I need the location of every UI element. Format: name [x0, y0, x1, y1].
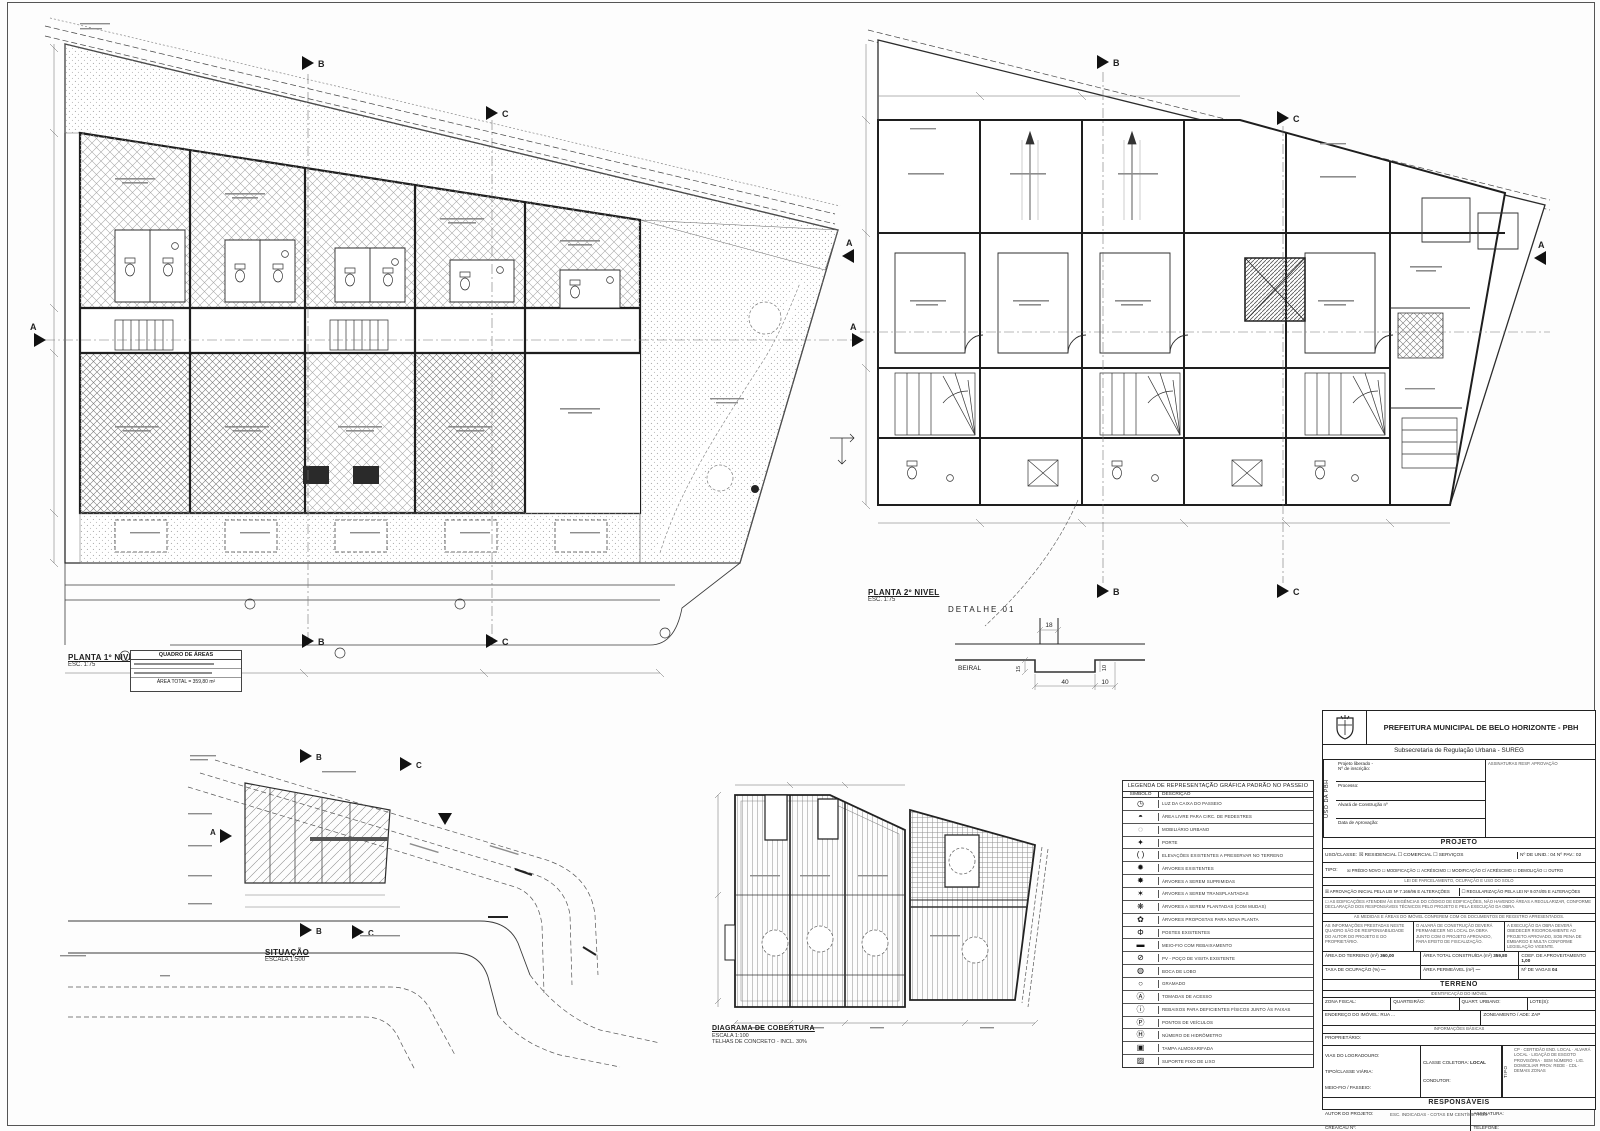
- legend-row: ✸ÁRVORES A SEREM SUPRIMIDAS: [1123, 875, 1313, 888]
- legend-desc: ÁRVORES A SEREM SUPRIMIDAS: [1159, 879, 1313, 884]
- roof-note: TELHAS DE CONCRETO - INCL. 30%: [712, 1039, 815, 1045]
- plan1-areas-table: QUADRO DE ÁREAS ÁREA TOTAL = 359,80 m²: [130, 650, 242, 692]
- legend-row: ⓅPONTOS DE VEÍCULOS: [1123, 1017, 1313, 1030]
- taxa-ocupacao-value: —: [1381, 967, 1386, 972]
- svg-text:C: C: [1293, 587, 1300, 597]
- site-title: SITUAÇÃO: [265, 948, 309, 957]
- legend-desc: POSTES EXISTENTES: [1159, 930, 1313, 935]
- meio-fio-passeio: MEIO-FIO / PASSEIO:: [1325, 1085, 1418, 1090]
- legend-desc: TOMADAS DE ACESSO: [1159, 994, 1313, 999]
- site-street-main: [68, 921, 530, 1015]
- svg-text:C: C: [416, 761, 422, 770]
- roof-right-block: [910, 810, 1048, 1007]
- legend-desc: ÁRVORES EXISTENTES: [1159, 866, 1313, 871]
- lotes: LOTE(S):: [1528, 998, 1595, 1010]
- svg-text:B: B: [1113, 587, 1120, 597]
- areas-table-total: ÁREA TOTAL = 359,80 m²: [131, 678, 241, 686]
- plan1-title: PLANTA 1º NIVEL: [68, 653, 139, 662]
- proprietario: PROPRIETÁRIO:: [1323, 1034, 1595, 1045]
- svg-text:15: 15: [1016, 666, 1022, 672]
- legend-symbol: ✸: [1123, 877, 1159, 885]
- legend-desc: SUPORTE FIXO DE LIXO: [1159, 1059, 1313, 1064]
- legend-row: ⓘREBAIXOS PARA DEFICIENTES FÍSICOS JUNTO…: [1123, 1004, 1313, 1017]
- svg-text:C: C: [368, 929, 374, 938]
- legend-row: ✦PORTE: [1123, 837, 1313, 850]
- vagas-label: Nº DE VAGAS: [1521, 967, 1550, 972]
- roof-title: DIAGRAMA DE COBERTURA: [712, 1025, 815, 1033]
- legend-row: ❋ÁRVORES A SEREM PLANTADAS (COM MUDAS): [1123, 901, 1313, 914]
- legend-desc: PONTOS DE VEÍCULOS: [1159, 1020, 1313, 1025]
- plan2-caption: PLANTA 2º NIVEL ESC. 1:75: [868, 588, 939, 604]
- tipo-label: TIPO:: [1323, 867, 1345, 874]
- endereco: ENDEREÇO DO IMÓVEL: RUA ...: [1323, 1011, 1481, 1025]
- legend-row: ⊘PV - POÇO DE VISITA EXISTENTE: [1123, 952, 1313, 965]
- legend-row: ✹ÁRVORES EXISTENTES: [1123, 862, 1313, 875]
- terreno-header: TERRENO: [1323, 980, 1595, 990]
- lei-line: LEI DE PARCELAMENTO, OCUPAÇÃO E USO DO S…: [1323, 878, 1595, 885]
- coef-value: 1,00: [1521, 958, 1530, 963]
- field-assinaturas: ASSINATURAS RESP. APROVAÇÃO: [1486, 760, 1595, 837]
- site-scale: ESCALA 1:500: [265, 957, 309, 964]
- roof-left-block: [725, 795, 905, 1007]
- legend-symbol: ◷: [1123, 800, 1159, 808]
- legend-desc: REBAIXOS PARA DEFICIENTES FÍSICOS JUNTO …: [1159, 1007, 1313, 1012]
- roof-plan-drawing: [690, 775, 1050, 1045]
- coef-label: COEF. DE APROVEITAMENTO: [1521, 953, 1586, 958]
- legend-row: ΦPOSTES EXISTENTES: [1123, 927, 1313, 940]
- fine-print-3b: O ALVARÁ DE CONSTRUÇÃO DEVERÁ PERMANECER…: [1414, 922, 1505, 951]
- field-alvara: Alvará de Construção nº: [1336, 801, 1485, 820]
- svg-text:C: C: [502, 637, 509, 647]
- legend-row: ▣TAMPA ALMOXARIFADA: [1123, 1042, 1313, 1055]
- legend-table: LEGENDA DE REPRESENTAÇÃO GRÁFICA PADRÃO …: [1122, 780, 1314, 1068]
- responsaveis-header: RESPONSÁVEIS: [1323, 1098, 1595, 1109]
- svg-text:A: A: [1538, 240, 1545, 250]
- legend-row: ⒽNÚMERO DE HIDRÔMETRO: [1123, 1029, 1313, 1042]
- legend-desc: LUZ DA CAIXA DO PASSEIO: [1159, 801, 1313, 806]
- info-basicas: INFORMAÇÕES BÁSICAS: [1323, 1026, 1595, 1033]
- plan2-building: [878, 120, 1518, 505]
- tipo-vert-label: TIPO: [1502, 1046, 1512, 1097]
- classe-coletora-value: LOCAL: [1470, 1060, 1486, 1065]
- aprovacao-opt2: ☐ REGULARIZAÇÃO PELA LEI Nº 9.074/05 E A…: [1459, 888, 1596, 896]
- legend-desc: ELEVAÇÕES EXISTENTES A PRESERVAR NO TERR…: [1159, 853, 1313, 858]
- legend-symbol: Ⓟ: [1123, 1019, 1159, 1027]
- svg-text:B: B: [316, 753, 322, 762]
- legend-desc: BOCA DE LOBO: [1159, 969, 1313, 974]
- legend-col-desc: DESCRIÇÃO: [1159, 792, 1313, 797]
- legend-symbol: ✿: [1123, 916, 1159, 924]
- legend-desc: ÁRVORES A SEREM TRANSPLANTADAS: [1159, 891, 1313, 896]
- plan2-title: PLANTA 2º NIVEL: [868, 588, 939, 597]
- legend-symbol: ▣: [1123, 1044, 1159, 1052]
- fine-print-1: ☐ AS EDIFICAÇÕES ATENDEM ÀS EXIGÊNCIAS D…: [1323, 898, 1595, 913]
- svg-text:18: 18: [1045, 622, 1053, 629]
- drawing-sheet: B C B C A A: [0, 0, 1600, 1131]
- site-street-lower: [68, 975, 660, 1070]
- svg-text:B: B: [316, 927, 322, 936]
- legend-symbol: ◌: [1123, 826, 1159, 834]
- fine-print-3c: A EXECUÇÃO DA OBRA DEVERÁ OBEDECER RIGOR…: [1505, 922, 1595, 951]
- legend-row: ◍BOCA DE LOBO: [1123, 965, 1313, 978]
- svg-text:B: B: [318, 59, 325, 69]
- svg-text:10: 10: [1101, 679, 1109, 686]
- svg-text:A: A: [210, 828, 216, 837]
- site-plan-drawing: B C A B C: [60, 725, 680, 1071]
- plan1-caption: PLANTA 1º NIVEL ESC. 1:75: [68, 653, 139, 669]
- legend-row: ○GRAMADO: [1123, 978, 1313, 991]
- legend-rows: ◷LUZ DA CAIXA DO PASSEIO◓ÁREA LIVRE PARA…: [1123, 798, 1313, 1067]
- quarteirao: QUARTEIRÃO:: [1391, 998, 1459, 1010]
- legend-symbol: ◓: [1123, 813, 1159, 821]
- legend-symbol: ▨: [1123, 1057, 1159, 1065]
- zoneamento: ZONEAMENTO / ADE: ZAP: [1481, 1011, 1595, 1025]
- svg-text:40: 40: [1061, 679, 1069, 686]
- legend-desc: GRAMADO: [1159, 981, 1313, 986]
- autor-telefone: TELEFONE:: [1473, 1125, 1593, 1130]
- uso-pbh-strip: USO DA PBH: [1323, 760, 1336, 837]
- uso-right: Nº DE UNID.: 04 Nº PAV.: 02: [1517, 852, 1595, 859]
- legend-title: LEGENDA DE REPRESENTAÇÃO GRÁFICA PADRÃO …: [1123, 781, 1313, 792]
- legend-symbol: ○: [1123, 980, 1159, 988]
- legend-desc: PV - POÇO DE VISITA EXISTENTE: [1159, 956, 1313, 961]
- field-inscricao: Nº de inscrição:: [1338, 766, 1483, 771]
- areas-table-title: QUADRO DE ÁREAS: [131, 651, 241, 660]
- titleblock-footer: ESC. INDICADAS - COTAS EM CENTÍMETROS: [1390, 1112, 1487, 1117]
- svg-text:B: B: [1113, 58, 1120, 68]
- uso-options: ☒ RESIDENCIAL ☐ COMERCIAL ☐ SERVIÇOS: [1357, 852, 1517, 859]
- site-lot: [245, 783, 400, 907]
- field-processo: Processo:: [1336, 782, 1485, 801]
- tipo-checklist: CP · CERTIDÃO END. LOCAL · ALVARÁ LOCAL …: [1512, 1046, 1595, 1097]
- legend-desc: NÚMERO DE HIDRÔMETRO: [1159, 1033, 1313, 1038]
- area-permeavel-label: ÁREA PERMEÁVEL (m²): [1423, 967, 1474, 972]
- plan1-side-yard: [619, 220, 838, 563]
- legend-symbol: ✹: [1123, 864, 1159, 872]
- plan2-scale: ESC. 1:75: [868, 597, 939, 604]
- legend-symbol: ✶: [1123, 890, 1159, 898]
- vagas-value: 04: [1552, 967, 1557, 972]
- zona-fiscal: ZONA FISCAL:: [1323, 998, 1391, 1010]
- site-caption: SITUAÇÃO ESCALA 1:500: [265, 948, 309, 964]
- plan2-second-floor-drawing: B C B C A A: [850, 8, 1560, 656]
- legend-symbol: Φ: [1123, 929, 1159, 937]
- svg-text:C: C: [502, 109, 509, 119]
- legend-symbol: ▬: [1123, 941, 1159, 949]
- legend-row: ◓ÁREA LIVRE PARA CIRC. DE PEDESTRES: [1123, 811, 1313, 824]
- legend-row: ( )ELEVAÇÕES EXISTENTES A PRESERVAR NO T…: [1123, 849, 1313, 862]
- plan1-street: [65, 563, 740, 645]
- detail-beiral-label: BEIRAL: [958, 665, 982, 672]
- svg-text:C: C: [1293, 114, 1300, 124]
- titleblock-subheader: Subsecretaria de Regulação Urbana - SURE…: [1323, 745, 1595, 759]
- projeto-header: PROJETO: [1323, 838, 1595, 848]
- legend-desc: TAMPA ALMOXARIFADA: [1159, 1046, 1313, 1051]
- legend-desc: MOBILIÁRIO URBANO: [1159, 827, 1313, 832]
- area-permeavel-value: —: [1476, 967, 1481, 972]
- legend-desc: ÁRVORES PROPOSTAS PARA NOVA PLANTA: [1159, 917, 1313, 922]
- site-curb-marks: [488, 869, 596, 955]
- pbh-logo: [1323, 711, 1367, 744]
- legend-row: ✿ÁRVORES PROPOSTAS PARA NOVA PLANTA: [1123, 914, 1313, 927]
- vias-logradouro: VIAS DO LOGRADOURO:: [1325, 1053, 1418, 1058]
- svg-text:B: B: [318, 637, 325, 647]
- legend-symbol: ⊘: [1123, 954, 1159, 962]
- plan1-dark-block: [303, 466, 329, 484]
- detail-01-drawing: DETALHE 01 18 40 10 15 10 BEIRAL: [940, 598, 1170, 703]
- legend-desc: ÁREA LIVRE PARA CIRC. DE PEDESTRES: [1159, 814, 1313, 819]
- title-block: PREFEITURA MUNICIPAL DE BELO HORIZONTE -…: [1322, 710, 1596, 1110]
- legend-row: ◷LUZ DA CAIXA DO PASSEIO: [1123, 798, 1313, 811]
- detail-title: DETALHE 01: [948, 605, 1015, 614]
- area-construida-value: 359,80: [1493, 953, 1507, 958]
- legend-symbol: Ⓗ: [1123, 1031, 1159, 1039]
- legend-symbol: ⓘ: [1123, 1006, 1159, 1014]
- plan1-scale: ESC. 1:75: [68, 662, 139, 669]
- taxa-ocupacao-label: TAXA DE OCUPAÇÃO (%): [1325, 967, 1380, 972]
- svg-text:10: 10: [1102, 665, 1108, 671]
- legend-row: ✶ÁRVORES A SEREM TRANSPLANTADAS: [1123, 888, 1313, 901]
- terreno-sub: IDENTIFICAÇÃO DO IMÓVEL: [1323, 991, 1595, 997]
- fine-print-2: AS MEDIDAS E ÁREAS DO IMÓVEL CONFEREM CO…: [1323, 914, 1595, 921]
- plan1-dark-block: [353, 466, 379, 484]
- classe-coletora: CLASSE COLETORA:: [1423, 1060, 1469, 1065]
- condutor: CONDUTOR:: [1423, 1078, 1499, 1083]
- fine-print-3a: AS INFORMAÇÕES PRESTADAS NESTE QUADRO SÃ…: [1323, 922, 1414, 951]
- legend-symbol: ❋: [1123, 903, 1159, 911]
- uso-label: USO/CLASSE:: [1323, 852, 1357, 859]
- tipo-options: ☒ PRÉDIO NOVO ☐ MODIFICAÇÃO ☐ ACRÉSCIMO …: [1345, 867, 1595, 874]
- legend-row: ▨SUPORTE FIXO DE LIXO: [1123, 1055, 1313, 1067]
- field-data-aprovacao: Data de Aprovação:: [1336, 819, 1485, 837]
- area-construida-label: ÁREA TOTAL CONSTRUÍDA (m²): [1423, 953, 1492, 958]
- autor-crea: CREA/CAU Nº:: [1325, 1125, 1468, 1130]
- autor-assinatura: ASSINATURA:: [1473, 1111, 1593, 1116]
- legend-symbol: Ⓐ: [1123, 993, 1159, 1001]
- legend-symbol: ( ): [1123, 851, 1159, 859]
- roof-caption: DIAGRAMA DE COBERTURA ESCALA 1:100 TELHA…: [712, 1025, 815, 1046]
- area-terreno-value: 360,00: [1380, 953, 1394, 958]
- svg-text:A: A: [850, 322, 857, 332]
- legend-row: ◌MOBILIÁRIO URBANO: [1123, 824, 1313, 837]
- titleblock-header: PREFEITURA MUNICIPAL DE BELO HORIZONTE -…: [1367, 723, 1595, 732]
- aprovacao-opt1: ☒ APROVAÇÃO INICIAL PELA LEI Nº 7.166/96…: [1323, 888, 1459, 896]
- legend-row: ▬MEIO-FIO COM REBAIXAMENTO: [1123, 939, 1313, 952]
- legend-desc: ÁRVORES A SEREM PLANTADAS (COM MUDAS): [1159, 904, 1313, 909]
- detail-dim-text: 18 40 10 15 10 BEIRAL: [958, 622, 1109, 686]
- plan1-first-floor-drawing: B C B C A A: [20, 8, 860, 708]
- legend-symbol: ✦: [1123, 839, 1159, 847]
- quarteirao-urbano: QUART. URBANO:: [1460, 998, 1528, 1010]
- plan2-shaft: [1245, 258, 1305, 321]
- legend-col-symbol: SÍMBOLO: [1123, 792, 1159, 797]
- legend-symbol: ◍: [1123, 967, 1159, 975]
- legend-desc: MEIO-FIO COM REBAIXAMENTO: [1159, 943, 1313, 948]
- legend-desc: PORTE: [1159, 840, 1313, 845]
- svg-text:A: A: [30, 322, 37, 332]
- plan1-front-strip: [80, 513, 640, 563]
- legend-row: ⒶTOMADAS DE ACESSO: [1123, 991, 1313, 1004]
- tipo-classe-viaria: TIPO/CLASSE VIÁRIA:: [1325, 1069, 1418, 1074]
- area-terreno-label: ÁREA DO TERRENO (m²): [1325, 953, 1379, 958]
